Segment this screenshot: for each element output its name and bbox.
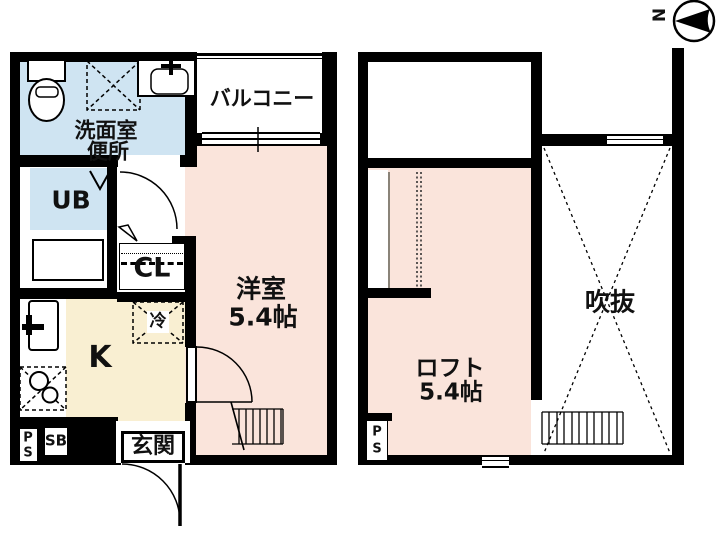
western-room-door-leaf — [186, 346, 197, 403]
stove-icon — [20, 367, 66, 410]
wall-washroom-bottom-right — [180, 155, 197, 167]
wall-ub-right — [107, 167, 117, 298]
wall-2f-left — [358, 52, 368, 465]
balcony-railing-outer — [196, 53, 327, 56]
loft-bottom-window-mid — [482, 460, 509, 461]
floor-plan-canvas: 洗面室 便所 バルコニー UB CL 洋室 5.4帖 K 冷 玄関 P S SB… — [0, 0, 717, 537]
kitchen-sink-icon — [22, 301, 58, 350]
void-window — [607, 134, 663, 146]
label-pipe-space-2f-p: P — [372, 426, 382, 439]
wall-void-top-left — [542, 134, 607, 146]
room-label-unit-bath: UB — [51, 188, 90, 213]
wall-2f-top — [358, 52, 542, 62]
wall-below-ub-box — [20, 288, 117, 299]
room-label-western-room-line1: 洋室 — [236, 277, 286, 302]
storage-box — [32, 239, 104, 281]
compass-icon — [674, 1, 714, 41]
stairs-2f-icon — [542, 412, 623, 444]
loft-bottom-window — [482, 455, 509, 468]
wall-1f-left — [10, 52, 20, 465]
label-pipe-space-1f-p: P — [23, 432, 33, 445]
loft-edge-strip — [368, 170, 388, 288]
compass-north-label: N — [649, 8, 666, 22]
wall-2f-bottom-right — [509, 455, 684, 465]
balcony-railing-inner — [196, 58, 322, 59]
wall-balcony-right — [322, 52, 337, 146]
hall-door-arc — [119, 172, 177, 241]
void-window-mid — [607, 139, 663, 140]
label-pipe-space-1f-s: S — [23, 447, 32, 460]
wall-1f-bottom-right — [185, 455, 337, 465]
wall-2f-room-bottom — [358, 158, 542, 168]
balcony-window-mid — [202, 138, 320, 140]
entrance-door-arc — [122, 464, 180, 526]
wall-kitchen-west-upper — [185, 237, 196, 347]
label-refrigerator: 冷 — [150, 314, 167, 331]
room-label-closet: CL — [133, 255, 170, 282]
wall-2f-right — [672, 48, 684, 465]
wall-2f-center — [531, 52, 542, 400]
wall-window-left-block — [185, 133, 202, 146]
label-shoe-box: SB — [45, 434, 67, 449]
label-pipe-space-2f-s: S — [372, 443, 381, 456]
room-label-kitchen: K — [88, 343, 111, 373]
wall-loft-stub — [365, 288, 431, 298]
room-label-balcony: バルコニー — [210, 89, 315, 110]
loft-edge-gray-line — [388, 172, 390, 288]
room-label-washroom-line2: 便所 — [87, 142, 129, 163]
wall-1f-top — [10, 52, 196, 62]
room-label-loft-line2: 5.4帖 — [419, 382, 483, 405]
room-label-entrance: 玄関 — [131, 436, 175, 458]
loft-floor — [368, 168, 531, 455]
room-label-western-room-line2: 5.4帖 — [228, 305, 297, 330]
room-label-loft-line1: ロフト — [416, 358, 485, 381]
room-label-washroom-line1: 洗面室 — [75, 121, 138, 142]
room-label-void: 吹抜 — [585, 290, 635, 315]
